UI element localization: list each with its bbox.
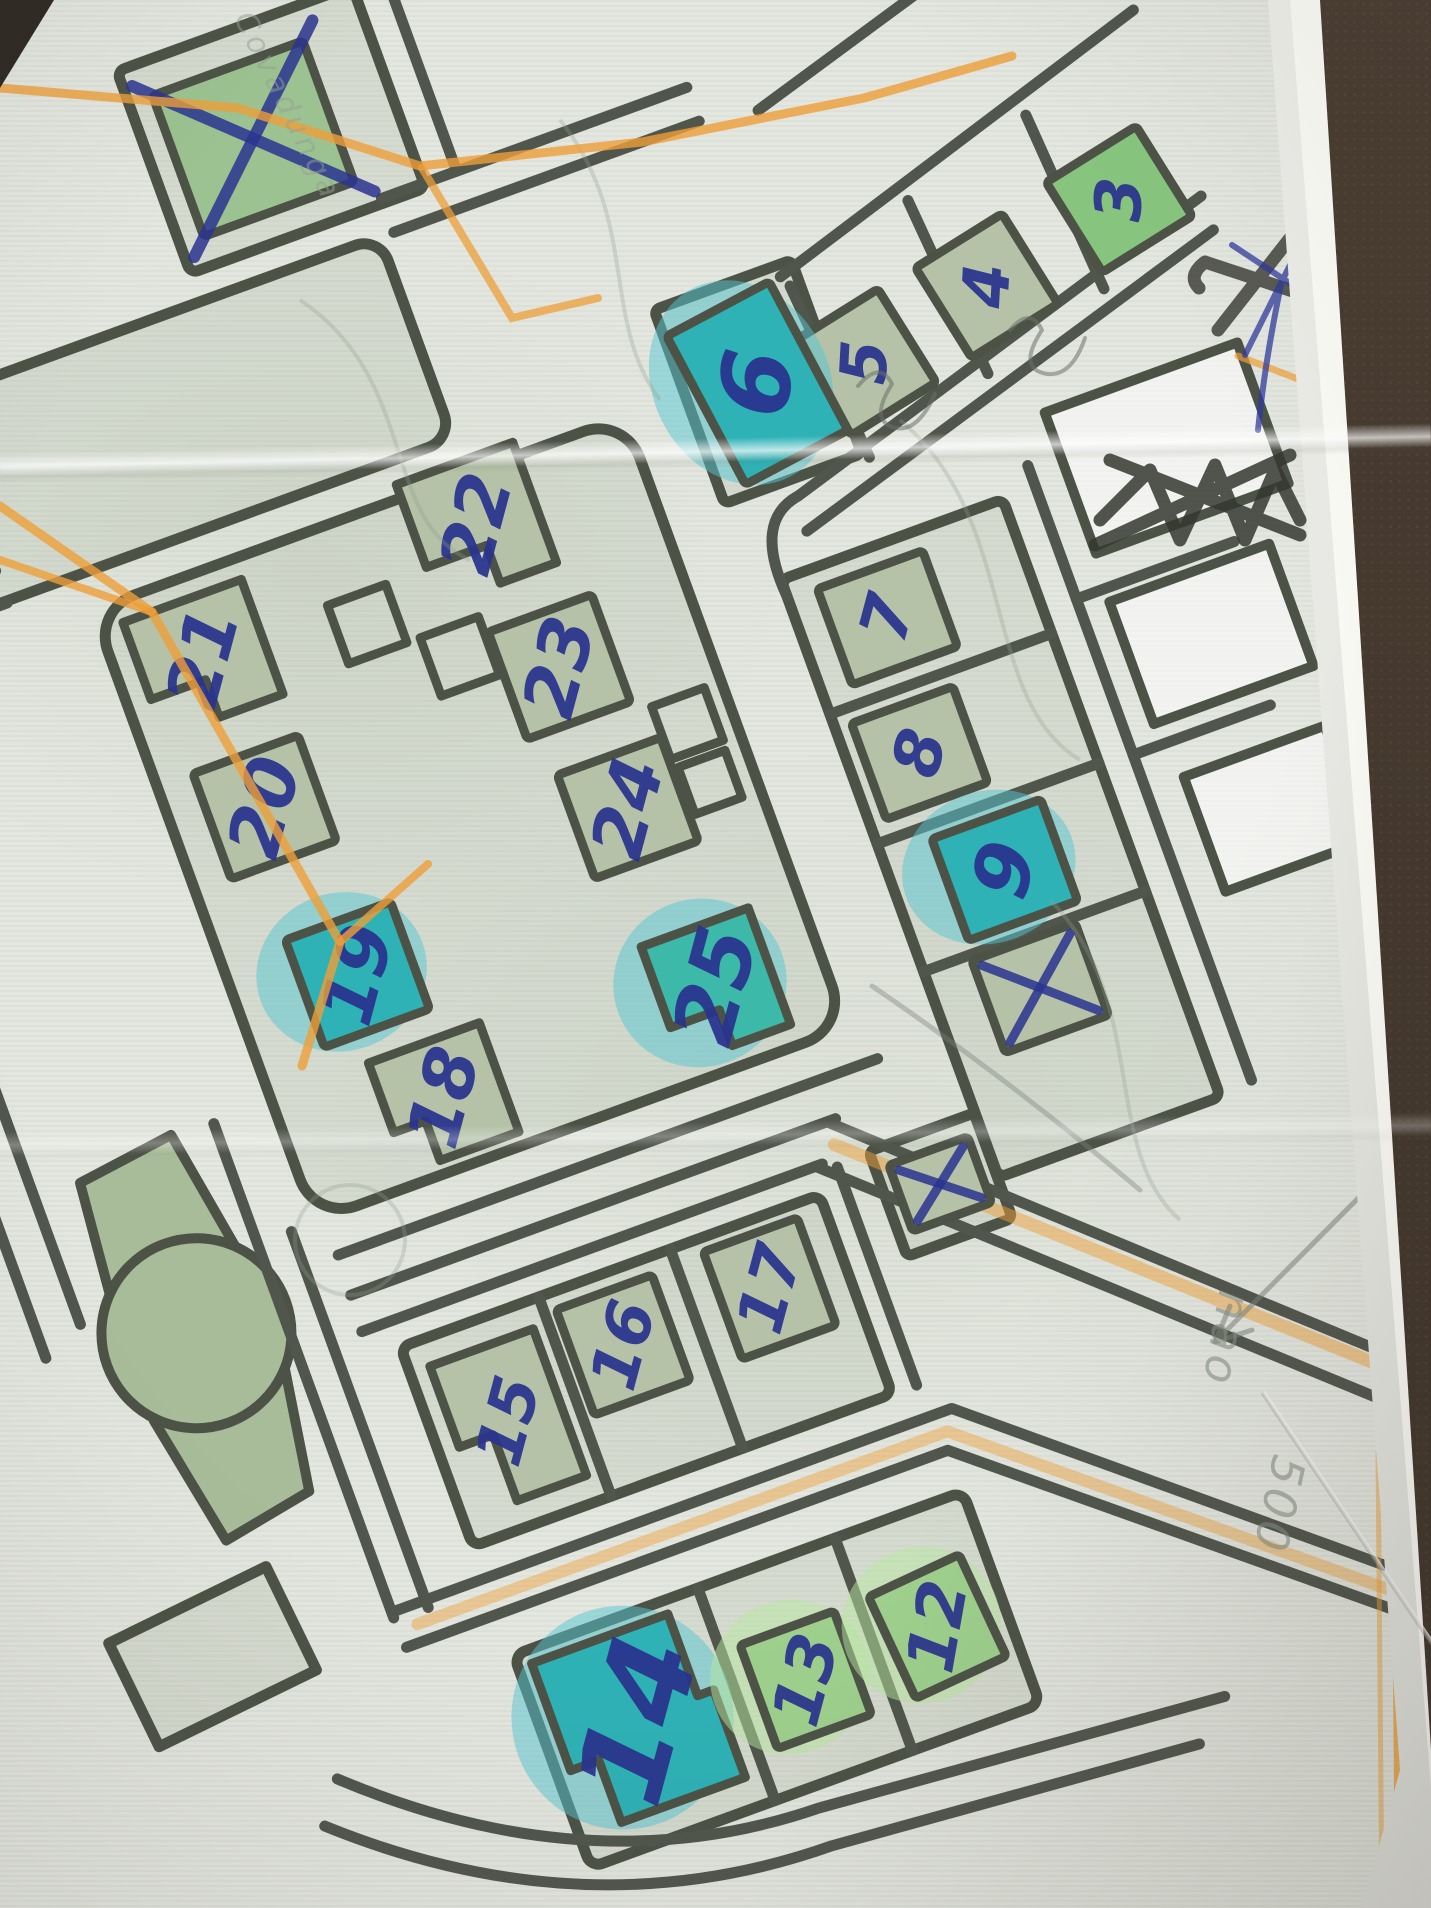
building-marker-b3: 3 [1046,126,1192,272]
pencil-x-mark [1194,228,1320,330]
map-drawing: 34562221232024192518789171615141312 [0,0,1431,1908]
map-photo: 34562221232024192518789171615141312 [0,0,1431,1908]
building-number: 6 [697,343,816,423]
building-number: 3 [1082,175,1158,223]
building-number: 12 [891,1575,983,1679]
building-number: 4 [949,262,1025,311]
